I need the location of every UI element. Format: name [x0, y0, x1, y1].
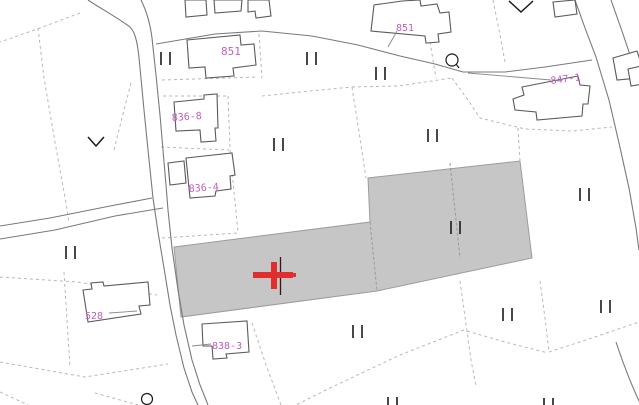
- field-symbol: [161, 52, 170, 65]
- cadastral-map-canvas[interactable]: 851 851 847-1 836-8 836-4 838-3 528: [0, 0, 639, 405]
- boundary-line: [259, 34, 262, 78]
- building-annex: [168, 161, 186, 185]
- boundary-lines-group: [0, 0, 639, 405]
- boundary-line: [252, 323, 281, 405]
- boundary-line: [161, 147, 229, 150]
- parcel-label-836-4: 836-4: [188, 182, 219, 195]
- chevron-icon: [88, 137, 104, 146]
- field-symbol: [544, 398, 553, 405]
- field-symbol: [66, 246, 75, 259]
- road-lines-group: [0, 0, 639, 405]
- marker-vbar: [271, 262, 277, 289]
- leader-line: [468, 73, 551, 80]
- field-symbol: [580, 188, 589, 201]
- parcel-label-528: 528: [85, 311, 103, 322]
- boundary-line: [0, 392, 28, 405]
- field-symbol: [307, 52, 316, 65]
- boundary-line: [540, 281, 549, 352]
- boundary-line: [95, 393, 138, 405]
- boundary-line: [0, 13, 80, 42]
- field-symbol: [428, 129, 437, 142]
- road-edge: [616, 342, 639, 403]
- boundary-line: [162, 233, 238, 238]
- marker-dot: [292, 273, 296, 277]
- boundary-line: [352, 78, 452, 87]
- boundary-line: [114, 83, 131, 150]
- circle-tail: [456, 64, 459, 68]
- building: [553, 0, 577, 17]
- boundary-line: [460, 281, 476, 386]
- field-symbol: [601, 300, 610, 313]
- building: [185, 0, 207, 17]
- building-838-3: [202, 321, 249, 359]
- boundary-line: [0, 362, 168, 377]
- boundary-line: [549, 322, 639, 352]
- boundary-line: [64, 272, 70, 368]
- parcel-label-836-8: 836-8: [171, 111, 202, 124]
- buildings-group: [83, 0, 639, 359]
- field-symbol: [388, 397, 397, 405]
- parcel-label-851b: 851: [396, 23, 414, 34]
- road-edge: [575, 0, 639, 250]
- boundary-line: [262, 87, 352, 96]
- road-edge: [463, 60, 592, 72]
- field-symbol: [274, 138, 283, 151]
- field-symbol: [376, 67, 385, 80]
- building: [628, 66, 639, 86]
- road-edge: [0, 208, 163, 239]
- chevron-icon: [509, 1, 533, 12]
- boundary-line: [518, 128, 520, 161]
- boundary-line: [467, 331, 548, 353]
- building-851-right: [371, 0, 451, 43]
- road-edge: [88, 0, 198, 405]
- boundary-line: [493, 0, 505, 62]
- building: [248, 0, 271, 18]
- boundary-line: [296, 330, 464, 405]
- building: [214, 0, 242, 13]
- road-edge: [0, 198, 152, 226]
- well-circle-icon: [142, 394, 153, 405]
- boundary-line: [228, 96, 230, 148]
- field-symbol: [503, 308, 512, 321]
- parcel-label-851: 851: [221, 45, 241, 58]
- boundary-line: [352, 87, 366, 178]
- parcel-label-838-3: 838-3: [212, 341, 242, 352]
- field-symbol: [353, 325, 362, 338]
- map-svg: 851 851 847-1 836-8 836-4 838-3 528: [0, 0, 639, 405]
- boundary-line: [38, 28, 69, 223]
